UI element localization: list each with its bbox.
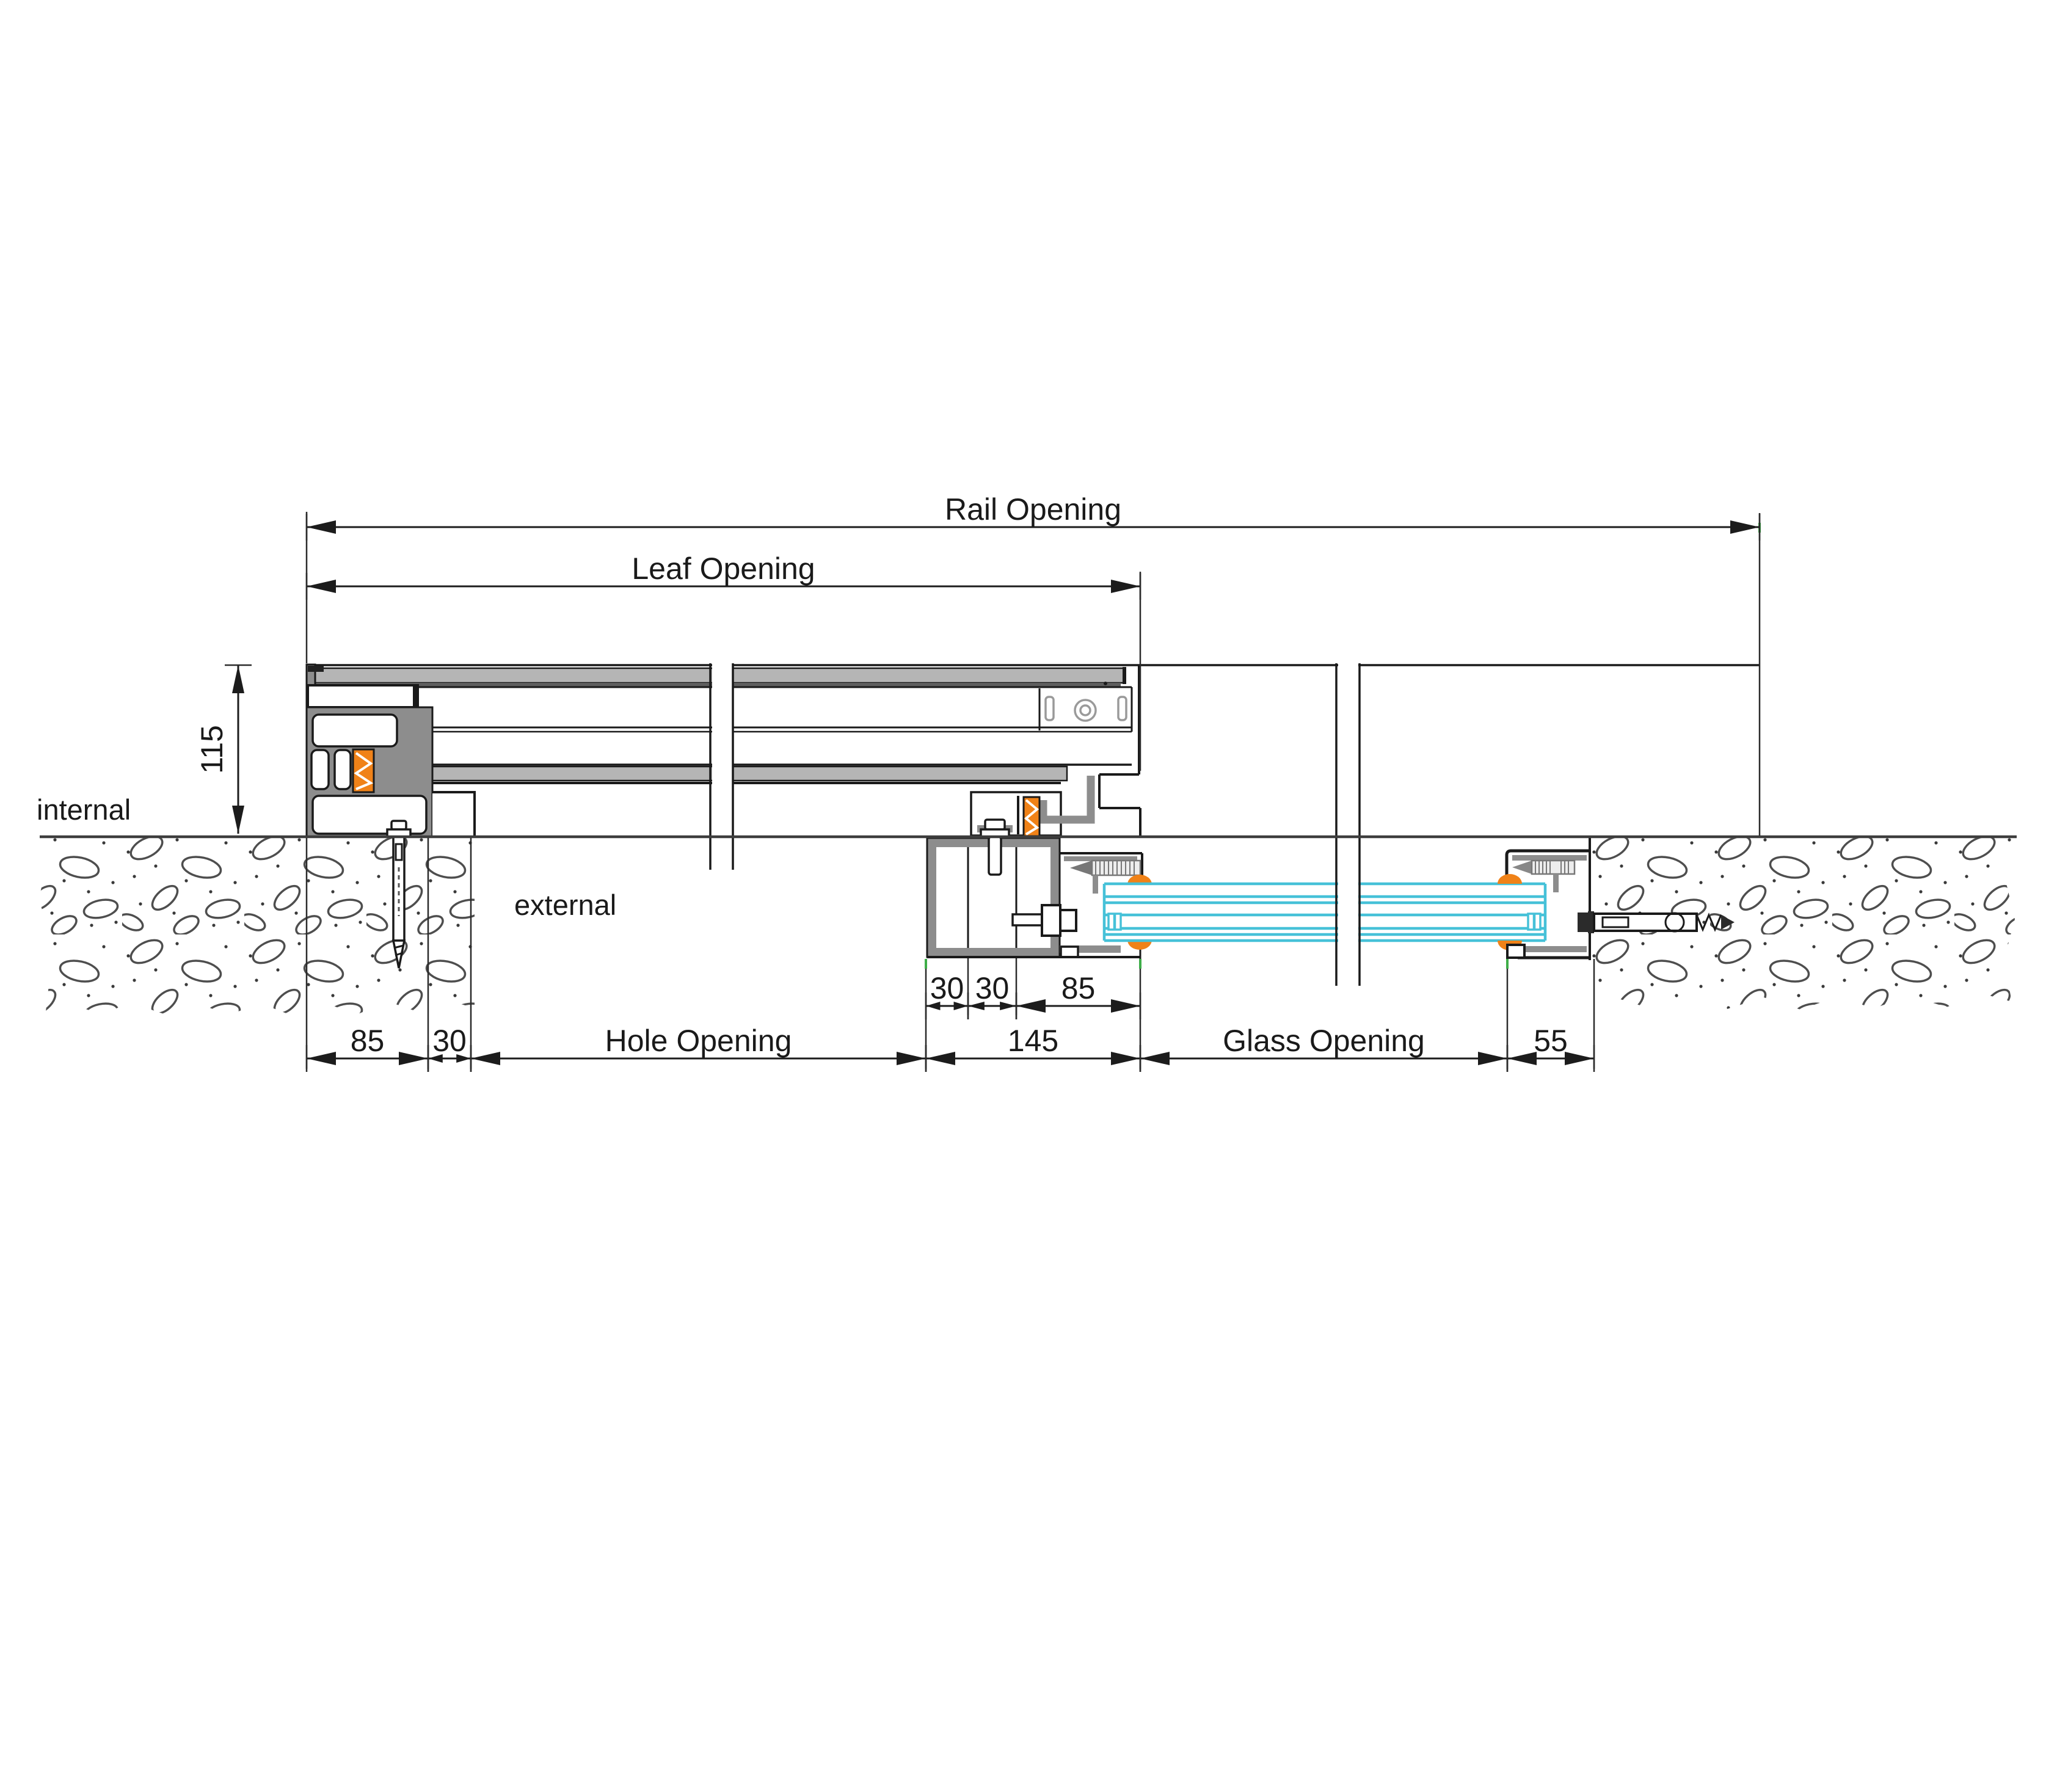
dimension-leaf-opening: Leaf Opening	[307, 552, 1140, 600]
dimension-interlock-85: 85	[1016, 971, 1140, 1019]
dimension-label-interlock-85: 85	[1061, 971, 1096, 1005]
drawing-canvas: Rail OpeningLeaf Opening8530Hole Opening…	[0, 0, 2057, 1792]
lock-plate	[1039, 682, 1132, 732]
dimension-label-hole-opening: Hole Opening	[605, 1024, 792, 1058]
dimension-label-jamb-55: 55	[1534, 1024, 1568, 1058]
glass-unit	[1104, 884, 1545, 941]
dimension-jamb-55: 55	[1507, 1024, 1594, 1072]
dimension-glass-opening: Glass Opening	[1140, 1024, 1507, 1072]
dimension-label-interlock-30a: 30	[930, 971, 964, 1005]
internal-label: internal	[37, 793, 131, 826]
dimension-frame-85: 85	[307, 1024, 428, 1072]
dimension-label-interlock-30b: 30	[975, 971, 1010, 1005]
dimension-frame-height-115: 115	[195, 665, 252, 834]
frame-gasket	[353, 749, 374, 792]
interlock-gasket	[1024, 797, 1039, 836]
dimension-hole-opening: Hole Opening	[471, 1024, 926, 1072]
dimension-label-frame-height-115: 115	[195, 725, 229, 774]
concrete-hatch-internal	[39, 838, 475, 1016]
external-label: external	[514, 889, 616, 921]
jamb-screw	[1512, 861, 1575, 892]
leaf-rail-assembly	[307, 665, 1760, 838]
dimension-label-interlock-145: 145	[1008, 1024, 1058, 1058]
dimension-label-glass-opening: Glass Opening	[1223, 1024, 1425, 1058]
extension-lines	[307, 512, 1760, 1069]
dimension-label-packer-30: 30	[432, 1024, 467, 1058]
dimension-rail-opening: Rail Opening	[307, 492, 1760, 541]
dimension-interlock-145: 145	[926, 1024, 1140, 1072]
dimension-label-rail-opening: Rail Opening	[945, 492, 1121, 526]
dimension-interlock-30b: 30	[968, 971, 1016, 1019]
dimension-interlock-30a: 30	[926, 971, 968, 1019]
dimension-packer-30: 30	[428, 1024, 471, 1072]
dimension-label-frame-85: 85	[351, 1024, 385, 1058]
dimension-label-leaf-opening: Leaf Opening	[632, 552, 815, 586]
